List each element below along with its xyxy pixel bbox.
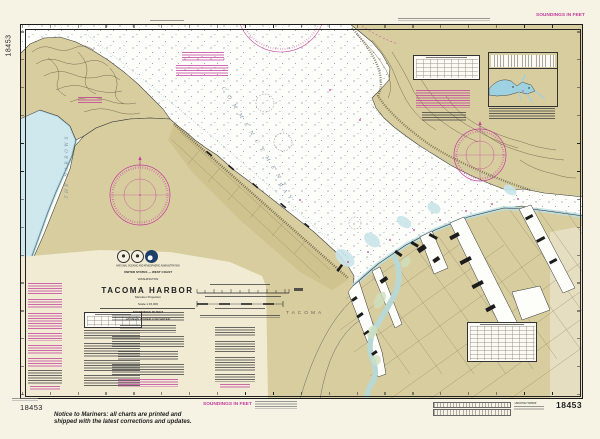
title-scale: Scale 1:15,000: [100, 303, 195, 307]
margin-print: [255, 401, 297, 409]
border-ticks-bottom: [22, 392, 580, 395]
note-block: [215, 341, 255, 353]
inset-caption: [489, 108, 555, 119]
chart-title: TACOMA HARBOR: [100, 286, 195, 295]
scale-caption-line: [215, 308, 265, 310]
inset-map: [489, 69, 555, 107]
notice-line-2: shipped with the latest corrections and …: [54, 419, 192, 426]
correction-row: [433, 402, 511, 408]
title-region: UNITED STATES — WEST COAST: [100, 271, 195, 275]
margin-print: [12, 398, 38, 401]
bottom-right-chart-title: Tacoma Harbor: [514, 402, 537, 405]
title-agency: NATIONAL OCEANIC AND ATMOSPHERIC ADMINIS…: [100, 264, 195, 268]
note-block: [28, 333, 62, 341]
chart-number-bottom-right: 18453: [556, 400, 582, 410]
tacoma-city-label: TACOMA: [286, 310, 324, 315]
title-datum: AT MEAN LOWER LOW WATER: [100, 318, 195, 322]
border-ticks-left: [21, 26, 24, 395]
note-block: [112, 364, 184, 376]
land-note-northeast: [416, 90, 470, 108]
note-block: [215, 327, 255, 337]
water-note: [182, 52, 224, 61]
the-narrows-label: THE NARROWS: [65, 164, 70, 199]
soundings-note-top-right: SOUNDINGS IN FEET: [536, 12, 585, 17]
note-block: [28, 313, 62, 329]
controlling-depths-table: [467, 322, 537, 362]
note-block: [30, 386, 60, 391]
title-soundings-unit: SOUNDINGS IN FEET: [100, 311, 195, 315]
note-block: [28, 358, 62, 367]
noaa-seal-icon: [145, 250, 158, 263]
notice-line-1: Notice to Mariners: all charts are print…: [54, 412, 192, 419]
note-block: [28, 345, 62, 355]
note-block: [28, 283, 62, 295]
soundings-note-bottom: SOUNDINGS IN FEET: [203, 401, 252, 406]
border-ticks-right: [577, 26, 580, 395]
margin-print: [398, 18, 490, 21]
title-projection: Mercator Projection: [100, 296, 195, 300]
bottom-right-edition-note: [514, 406, 544, 410]
chart-number-bottom-left: 18453: [20, 403, 43, 412]
nautical-chart-sheet: COMMENCEMENT BAY THE NARROWS TACOMA NATI…: [0, 0, 600, 439]
speed-scale-label: [294, 288, 303, 291]
scale-caption-line: [210, 284, 270, 286]
chart-number-left-rotated: 18453: [6, 31, 13, 61]
note-block: [28, 299, 62, 309]
note-block: [118, 379, 178, 387]
commerce-seal-icon: [117, 250, 130, 263]
note-block: [215, 374, 255, 382]
correction-boxes: [433, 402, 511, 417]
note-block: [200, 315, 280, 318]
note-block: [220, 384, 250, 389]
land-note-northeast: [422, 112, 466, 121]
scale-caption-line: [205, 296, 281, 298]
title-block: NATIONAL OCEANIC AND ATMOSPHERIC ADMINIS…: [100, 249, 195, 325]
nos-seal-icon: [131, 250, 144, 263]
note-block: [118, 351, 178, 361]
inset-header-table: [489, 53, 557, 69]
border-ticks-top: [22, 25, 580, 28]
water-note: [176, 65, 228, 76]
note-block: [215, 357, 255, 371]
harbor-inset: [488, 52, 558, 107]
margin-print: [150, 20, 184, 22]
title-state: WASHINGTON: [100, 278, 195, 282]
note-block: [120, 325, 176, 333]
correction-row: [433, 409, 511, 415]
notice-to-mariners: Notice to Mariners: all charts are print…: [54, 412, 192, 426]
tidal-information-table: [413, 55, 480, 80]
note-block: [28, 370, 62, 384]
note-block: [112, 336, 184, 348]
water-note: [78, 97, 102, 103]
